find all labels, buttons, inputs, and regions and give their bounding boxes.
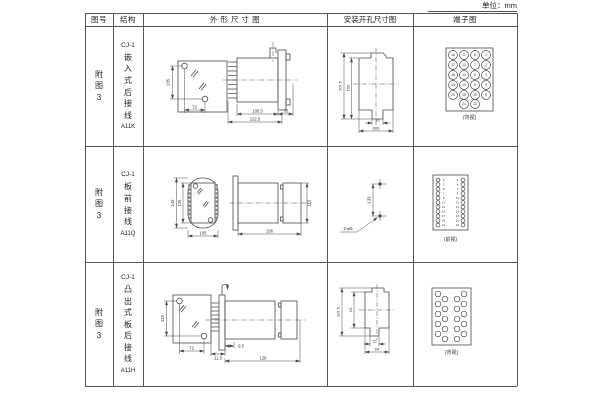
dim-front-width: 105	[200, 230, 208, 235]
svg-text:11: 11	[462, 53, 466, 57]
svg-text:5: 5	[485, 93, 487, 97]
center-line	[359, 284, 395, 340]
outline-drawing-a11h: 115 72 9.5 11.5 126	[143, 262, 327, 386]
dimension-lines	[228, 84, 293, 124]
dimension-lines	[174, 178, 218, 238]
svg-text:21: 21	[442, 223, 446, 227]
fig-no-row3: 附图3	[85, 262, 113, 386]
svg-text:16: 16	[456, 210, 460, 214]
dim-front-height-inner: 125	[177, 199, 182, 207]
svg-text:19: 19	[442, 219, 446, 223]
structure-label: 嵌入式后接线	[124, 52, 133, 122]
terminal-diagram-a11k: 16116117127218138319149420151052122 (背视)	[413, 26, 517, 146]
svg-text:10: 10	[473, 93, 477, 97]
dim-hole-note: 2-φ6	[343, 226, 353, 231]
dim-cutout-inner: 94	[348, 307, 353, 312]
dim-hole-spacing: 133	[367, 196, 372, 204]
outline-drawing-a11q: 145 125 105 156 110	[143, 146, 327, 262]
svg-text:18: 18	[451, 73, 455, 77]
svg-text:4: 4	[485, 83, 487, 87]
mount-drawing-a11q: 133 2-φ6	[327, 146, 413, 262]
dim-cutout-outer: 107.5	[338, 80, 343, 91]
model-code: A11H	[121, 368, 136, 374]
outline-drawing-a11k: 135 72 100.5 35 122.5	[143, 26, 327, 146]
svg-text:21: 21	[462, 102, 466, 106]
svg-text:12: 12	[462, 63, 466, 67]
svg-text:20: 20	[456, 219, 460, 223]
dimension-lines	[341, 53, 393, 133]
table-border-bottom	[85, 386, 517, 387]
svg-text:7: 7	[443, 192, 445, 196]
svg-text:11: 11	[442, 201, 445, 205]
model-code: A11K	[121, 124, 135, 130]
datasheet-page: 单位：mm 图号 结构 外 形 尺 寸 图 安装开孔尺寸图 端子图 附图3 附图…	[0, 0, 600, 400]
structure-label: 板前接线	[124, 181, 133, 227]
dim-body-length: 100.5	[252, 108, 263, 113]
structure-label: 凸出式板后接线	[124, 284, 133, 365]
dim-total-length: 122.5	[250, 116, 261, 121]
model-label: CJ-1	[121, 42, 135, 49]
table-border-right	[517, 13, 518, 386]
svg-text:1: 1	[485, 53, 487, 57]
svg-text:2: 2	[485, 63, 487, 67]
view-label: (前视)	[444, 236, 458, 243]
dim-cutout-width: 64	[375, 346, 380, 351]
dim-body-length: 126	[260, 355, 268, 360]
terminal-circles: 13579111315171921246810121416182022	[436, 178, 465, 227]
svg-text:8: 8	[457, 192, 459, 196]
svg-text:22: 22	[456, 223, 460, 227]
dim-slot-width: 16	[372, 340, 376, 344]
view-label: (背视)	[463, 114, 477, 121]
svg-text:17: 17	[451, 63, 455, 67]
center-line	[353, 48, 399, 125]
terminal-circles: 16116117127218138319149420151052122	[449, 51, 491, 109]
dim-pin: 11.5	[214, 356, 223, 361]
svg-text:3: 3	[443, 183, 445, 187]
front-view	[188, 178, 218, 228]
hole-crosshairs	[371, 179, 387, 221]
model-label: CJ-1	[121, 274, 135, 281]
structure-row2: CJ-1 板前接线 A11Q	[113, 146, 143, 262]
svg-text:3: 3	[485, 73, 487, 77]
svg-text:6: 6	[457, 187, 459, 191]
svg-text:20: 20	[451, 93, 455, 97]
svg-text:18: 18	[456, 214, 460, 218]
svg-text:1: 1	[443, 178, 445, 182]
svg-text:15: 15	[442, 210, 446, 214]
svg-text:15: 15	[462, 93, 466, 97]
header-fig: 图号	[85, 13, 113, 26]
side-view	[211, 285, 297, 351]
dim-cutout-inner: 105	[345, 84, 350, 91]
terminal-diagram-a11q: 13579111315171921246810121416182022 (前视)	[413, 146, 517, 262]
svg-text:2: 2	[457, 178, 459, 182]
svg-text:8: 8	[474, 73, 476, 77]
side-view	[228, 48, 290, 110]
terminal-diagram-a11h: (背视)	[413, 262, 517, 386]
svg-text:22: 22	[473, 102, 477, 106]
mount-drawing-a11h: 107.5 94 16 64	[327, 262, 413, 386]
svg-text:14: 14	[462, 83, 466, 87]
svg-text:13: 13	[462, 73, 466, 77]
dim-front-width: 72	[192, 105, 197, 110]
svg-text:12: 12	[456, 201, 460, 205]
model-code: A11Q	[121, 231, 136, 237]
structure-row1: CJ-1 嵌入式后接线 A11K	[113, 26, 143, 146]
fig-no-row1: 附图3	[85, 26, 113, 146]
structure-row3: CJ-1 凸出式板后接线 A11H	[113, 262, 143, 386]
header-structure: 结构	[113, 13, 143, 26]
model-label: CJ-1	[121, 171, 135, 178]
header-terminal: 端子图	[413, 13, 517, 26]
unit-label: 单位：mm	[430, 0, 517, 11]
svg-text:4: 4	[457, 183, 459, 187]
svg-text:7: 7	[474, 63, 476, 67]
dim-slot-width: 16	[375, 119, 379, 123]
dimension-lines	[238, 183, 309, 236]
dim-front-height: 135	[166, 78, 171, 86]
svg-text:17: 17	[442, 214, 446, 218]
dimension-lines	[170, 66, 205, 113]
header-outline: 外 形 尺 寸 图	[143, 13, 327, 26]
view-label: (背视)	[445, 349, 459, 356]
svg-text:14: 14	[456, 205, 460, 209]
dimension-lines	[339, 288, 389, 354]
svg-text:9: 9	[443, 196, 445, 200]
svg-text:10: 10	[456, 196, 460, 200]
dimension-lines	[211, 320, 300, 363]
dim-front-height: 115	[160, 314, 165, 321]
unit-underline	[428, 11, 517, 12]
svg-text:6: 6	[474, 53, 476, 57]
dim-rear-height: 110	[307, 199, 312, 206]
dim-body-length: 156	[266, 228, 274, 233]
svg-text:19: 19	[451, 83, 455, 87]
dim-rear-length: 35	[284, 108, 289, 113]
svg-text:16: 16	[451, 53, 455, 57]
dim-front-width: 72	[189, 345, 194, 350]
fig-no-row2: 附图3	[85, 146, 113, 262]
dim-front-height-outer: 145	[170, 199, 175, 207]
mount-drawing-a11k: 107.5 105 16 (66)	[327, 26, 413, 146]
dim-cutout-width: (66)	[372, 126, 380, 131]
front-view	[178, 61, 227, 112]
header-mount: 安装开孔尺寸图	[327, 13, 413, 26]
terminal-circles	[435, 291, 467, 342]
dim-offset: 9.5	[238, 344, 244, 349]
svg-text:5: 5	[443, 187, 445, 191]
dim-cutout-outer: 107.5	[336, 306, 341, 317]
svg-text:13: 13	[442, 205, 446, 209]
svg-text:9: 9	[474, 83, 476, 87]
